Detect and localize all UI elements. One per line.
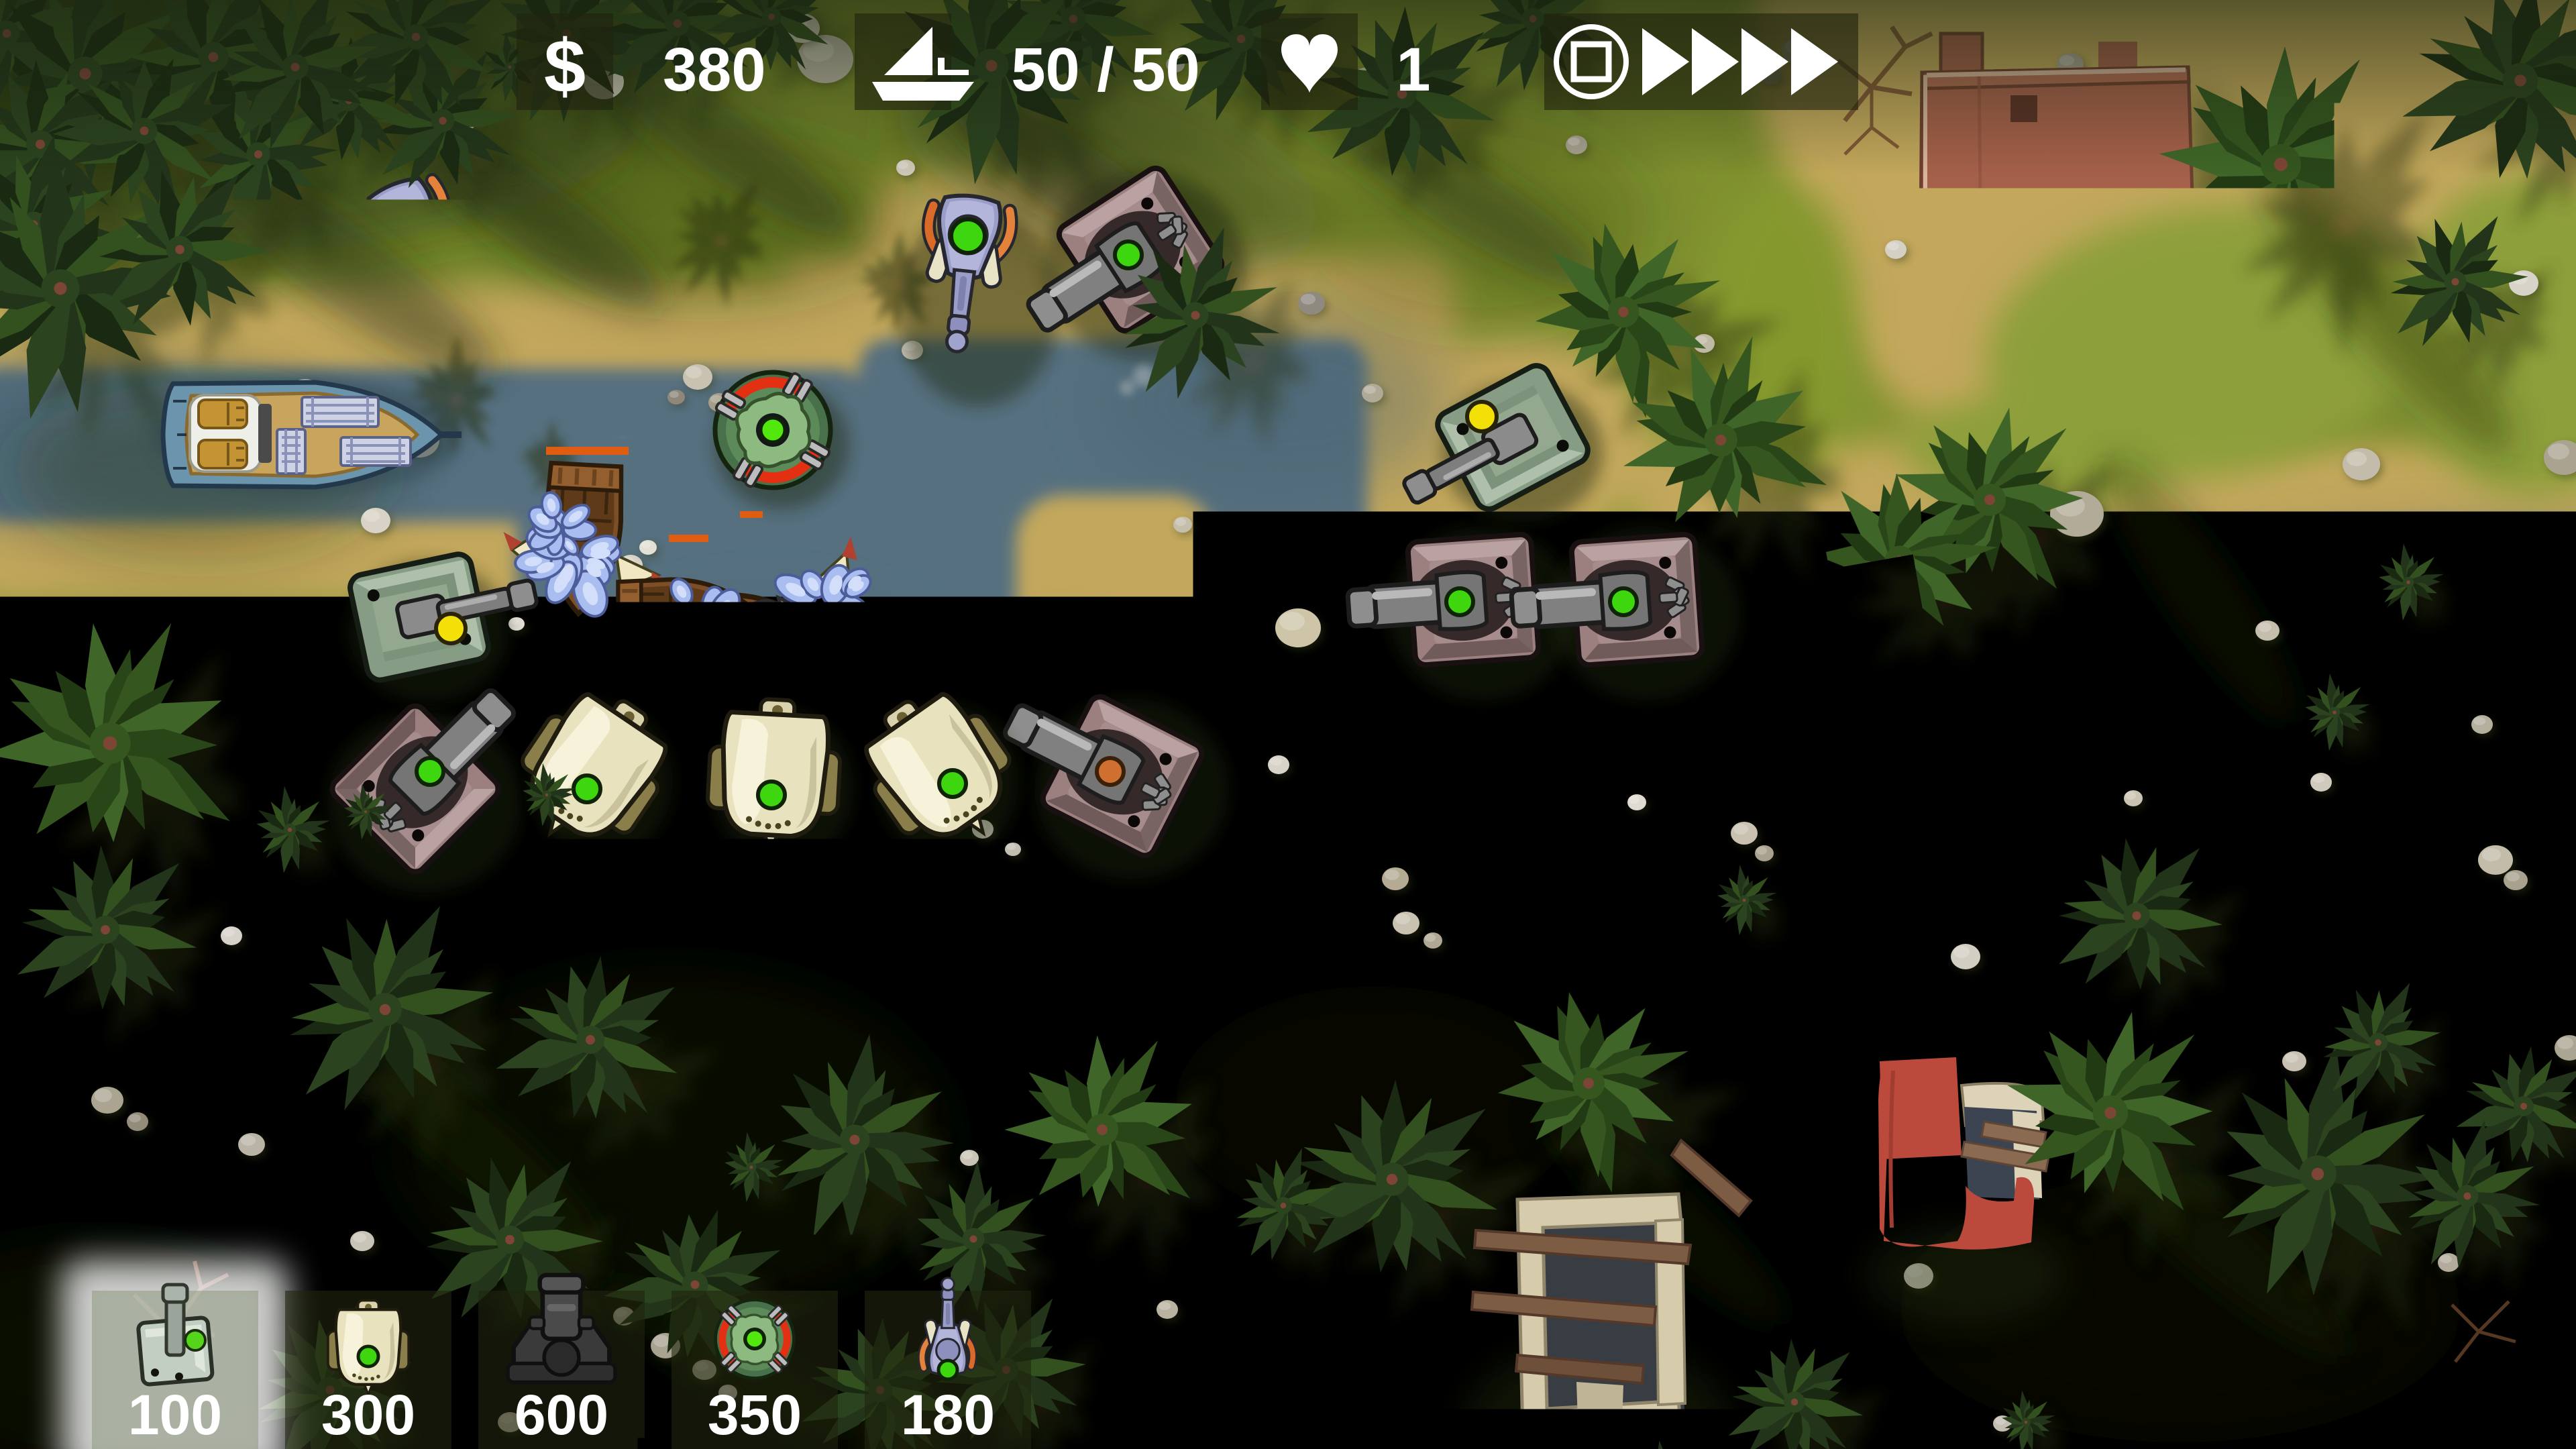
svg-text:50 / 50: 50 / 50	[1011, 36, 1199, 104]
svg-text:300: 300	[321, 1383, 415, 1446]
svg-text:1: 1	[1396, 36, 1430, 104]
svg-text:180: 180	[901, 1383, 995, 1446]
svg-text:100: 100	[128, 1383, 222, 1446]
svg-text:$: $	[544, 24, 586, 108]
svg-text:600: 600	[515, 1383, 608, 1446]
svg-text:350: 350	[708, 1383, 802, 1446]
svg-text:380: 380	[663, 36, 766, 104]
